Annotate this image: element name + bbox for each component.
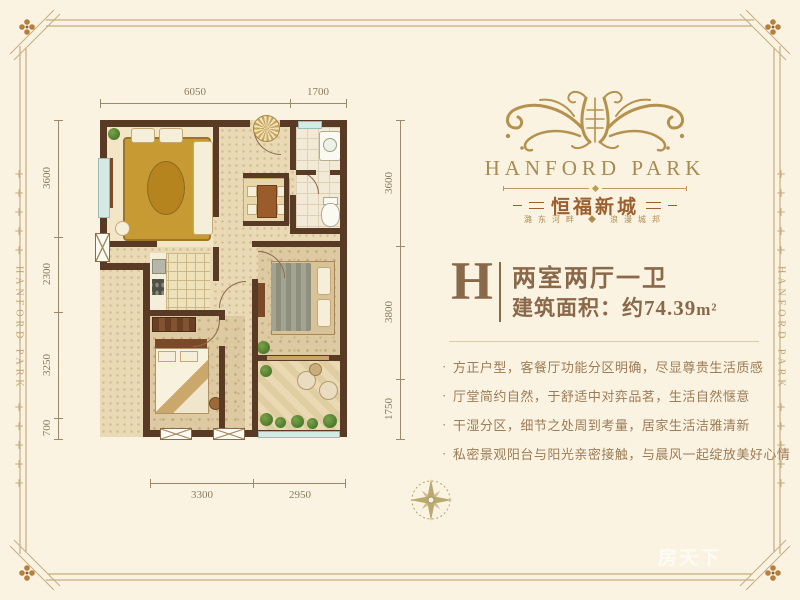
plus-ornament: + [776, 168, 786, 180]
pillow [180, 351, 198, 362]
wall-segment [340, 120, 347, 437]
right-rail: + + + + + HANFORD PARK + + + + + [768, 168, 794, 489]
wall-segment [252, 361, 258, 430]
unit-area: 建筑面积：约74.39m² [512, 292, 718, 322]
wall-segment [213, 247, 219, 281]
unit-type-letter: H [451, 254, 493, 308]
plus-ornament: + [776, 244, 786, 256]
wall-segment [284, 173, 289, 226]
unit-layout: 两室两厅一卫 [512, 258, 668, 293]
plus-ornament: + [776, 439, 786, 451]
dimension-line-top: 6050 1700 [100, 103, 347, 104]
plus-ornament: + [14, 458, 24, 470]
wall-segment [143, 310, 225, 316]
dimension-label: 6050 [175, 86, 215, 98]
floorplan-poster: + + + + + HANFORD PARK + + + + + + + + +… [0, 0, 800, 600]
plant [257, 341, 270, 354]
dimension-label: 1700 [298, 86, 338, 98]
plus-ornament: + [14, 187, 24, 199]
wall-segment [213, 127, 219, 217]
dining-chair [247, 186, 257, 197]
feature-text: 干湿分区，细节之处周到考量，居家生活洁雅清新 [453, 415, 750, 434]
brand-tagline: 潞东河畔 ◆ 浪漫城邦 [480, 214, 710, 225]
bay-window [95, 233, 110, 262]
feature-item: ·厅堂简约自然，于舒适中对弈品茗，生活自然惬意 [442, 381, 790, 410]
master-tv-cabinet [258, 283, 265, 317]
unit-area-unit: m² [696, 300, 717, 319]
plus-ornament: + [14, 206, 24, 218]
kitchen-sink [152, 259, 166, 274]
balcony-window-sill [267, 356, 329, 360]
wall-segment [219, 310, 225, 320]
dimension-label: 3800 [383, 295, 395, 329]
bedroom-window [160, 428, 192, 440]
dimension-line-right: 3600 3800 1750 [400, 120, 401, 440]
plus-ornament: + [14, 225, 24, 237]
dining-table [257, 185, 277, 218]
watermark: 房天下 [658, 543, 721, 570]
compass-icon [408, 477, 454, 523]
wall-segment [107, 241, 157, 247]
plus-ornament: + [14, 420, 24, 432]
dimension-line-bottom: 3300 2950 [150, 483, 346, 484]
wall-segment [243, 221, 289, 226]
plus-ornament: + [776, 477, 786, 489]
pillow [317, 267, 331, 295]
balcony-table [309, 363, 322, 376]
diamond-ornament [591, 185, 598, 192]
plus-ornament: + [776, 401, 786, 413]
brand-rule [503, 186, 687, 191]
plus-ornament: + [776, 420, 786, 432]
dimension-label: 3600 [383, 166, 395, 200]
dimension-label: 1750 [383, 392, 395, 426]
wall-segment [330, 170, 347, 175]
feature-text: 厅堂简约自然，于舒适中对弈品茗，生活自然惬意 [453, 386, 750, 405]
plus-ornament: + [776, 206, 786, 218]
feature-list: ·方正户型，客餐厅功能分区明确，尽显尊贵生活质感 ·厅堂简约自然，于舒适中对弈品… [442, 352, 790, 468]
wardrobe [152, 317, 196, 332]
feature-item: ·干湿分区，细节之处周到考量，居家生活洁雅清新 [442, 410, 790, 439]
bullet-dot: · [442, 417, 447, 433]
wall-segment [252, 279, 258, 361]
plus-ornament: + [776, 458, 786, 470]
plant [260, 365, 272, 377]
brand-crest-icon [490, 84, 700, 162]
wall-segment [243, 173, 289, 178]
dash-ornament [668, 205, 677, 206]
dimension-label: 2300 [41, 257, 53, 291]
dimension-label: 700 [41, 411, 53, 445]
plant [307, 418, 318, 429]
unit-divider [499, 262, 501, 322]
sofa [193, 141, 213, 235]
dash-ornament [513, 205, 522, 206]
armchair [159, 128, 183, 143]
left-rail: + + + + + HANFORD PARK + + + + + [6, 168, 32, 489]
wall-segment [252, 241, 347, 247]
right-rail-brand-text: HANFORD PARK [776, 266, 787, 391]
dimension-label: 3300 [182, 489, 222, 501]
plus-ornament: + [14, 439, 24, 451]
feature-text: 私密景观阳台与阳光亲密接触，与晨风一起绽放美好心情 [453, 444, 791, 463]
wall-segment [143, 263, 150, 437]
armchair [131, 128, 155, 143]
double-line-ornament [646, 202, 661, 209]
toilet [321, 203, 340, 227]
plus-ornament: + [776, 187, 786, 199]
dimension-label: 3600 [41, 161, 53, 195]
dining-chair [247, 204, 257, 215]
dimension-label: 2950 [280, 489, 320, 501]
wall-segment [219, 346, 225, 437]
dimension-line-left: 3600 2300 3250 700 [58, 120, 59, 440]
living-room-window [98, 158, 110, 218]
bullet-dot: · [442, 388, 447, 404]
hallway-window [213, 428, 245, 440]
stove [152, 279, 164, 295]
pillow [158, 351, 176, 362]
plant [260, 413, 273, 426]
bullet-dot: · [442, 359, 447, 375]
plant [108, 128, 120, 140]
pillow [317, 299, 331, 327]
floor-plan [95, 113, 353, 444]
bullet-dot: · [442, 446, 447, 462]
entry-ceiling-medallion [253, 115, 280, 142]
left-rail-brand-text: HANFORD PARK [14, 266, 25, 391]
side-table [115, 221, 130, 236]
wall-segment [290, 127, 296, 170]
plus-ornament: + [14, 477, 24, 489]
plus-ornament: + [776, 225, 786, 237]
wall-segment [296, 170, 316, 175]
feature-text: 方正户型，客餐厅功能分区明确，尽显尊贵生活质感 [453, 357, 764, 376]
dimension-label: 3250 [41, 348, 53, 382]
wall-segment [290, 228, 347, 234]
brand-name: HANFORD PARK [470, 156, 720, 181]
unit-area-text: 建筑面积：约74.39 [512, 296, 696, 320]
separator-line [449, 341, 759, 342]
feature-item: ·方正户型，客餐厅功能分区明确，尽显尊贵生活质感 [442, 352, 790, 381]
wall-segment [100, 120, 250, 127]
plus-ornament: + [14, 244, 24, 256]
plus-ornament: + [14, 168, 24, 180]
rug-oval-medallion [147, 161, 185, 215]
balcony-glazing [258, 431, 340, 438]
plus-ornament: + [14, 401, 24, 413]
feature-item: ·私密景观阳台与阳光亲密接触，与晨风一起绽放美好心情 [442, 439, 790, 468]
plant [323, 414, 337, 428]
sink-basin [323, 138, 337, 152]
plant [291, 415, 304, 428]
balcony-chair [319, 381, 338, 400]
bathroom-window [298, 121, 322, 129]
double-line-ornament [529, 202, 544, 209]
plant [275, 417, 286, 428]
